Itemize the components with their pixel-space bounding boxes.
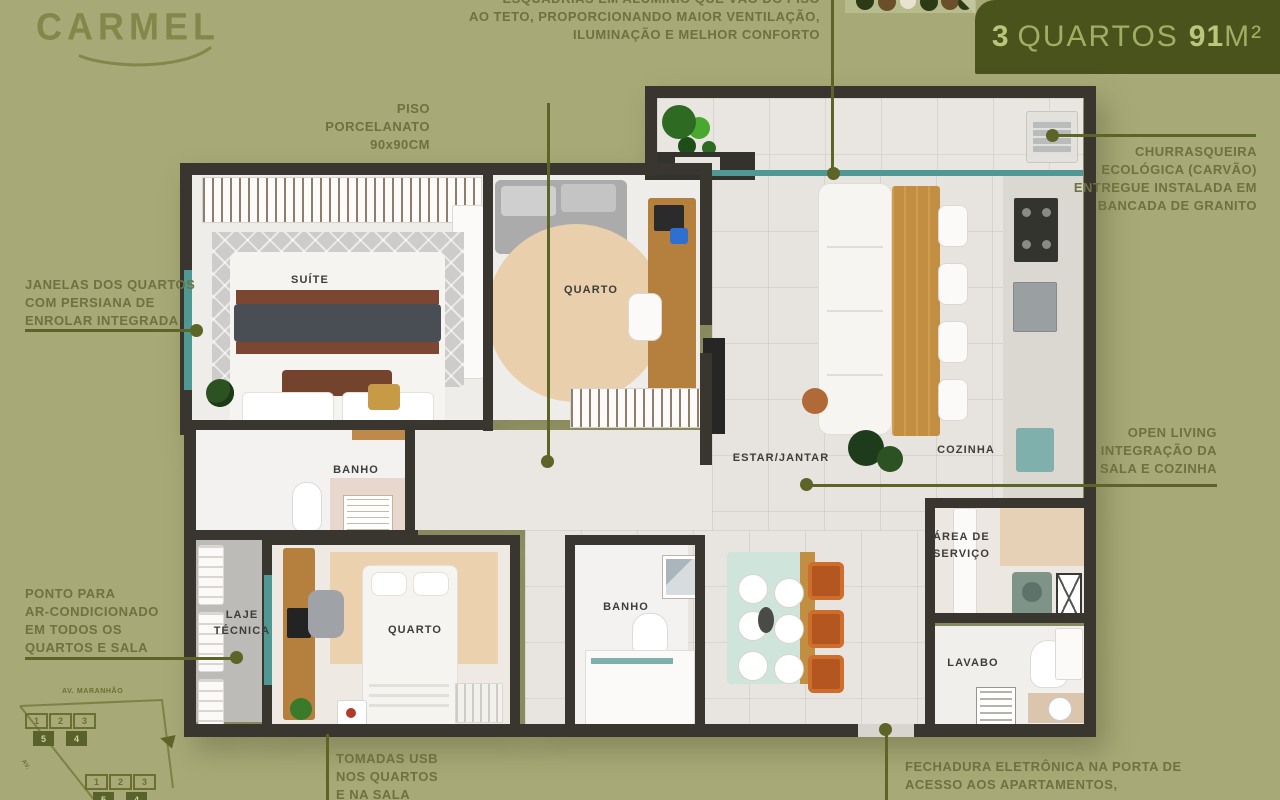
- annotation-line: ESQUADRIAS EM ALUMÍNIO QUE VÃO DO PISO: [469, 0, 820, 8]
- wall: [184, 425, 196, 737]
- annotation-piso: PISO PORCELANATO 90x90CM: [325, 100, 430, 154]
- leader-dot: [879, 723, 892, 736]
- red-accent: [346, 708, 356, 718]
- annotation-line: JANELAS DOS QUARTOS: [25, 276, 195, 294]
- room-label-laje1: LAJE: [226, 609, 259, 621]
- sofa-seam: [827, 310, 883, 312]
- plate: [774, 654, 804, 684]
- island-table: [892, 186, 940, 436]
- island-chair: [938, 321, 968, 363]
- annotation-line: BANCADA DE GRANITO: [1074, 197, 1257, 215]
- annotation-line: ENTREGUE INSTALADA EM: [1074, 179, 1257, 197]
- keyplan-tower: 1: [85, 774, 108, 790]
- wall: [262, 535, 514, 545]
- wall: [483, 163, 493, 431]
- blanket-fold: [369, 684, 449, 687]
- keyplan-tower-highlight: 5: [33, 731, 54, 746]
- window-balcony: [712, 170, 1083, 176]
- annotation-ar-condicionado: PONTO PARA AR-CONDICIONADO EM TODOS OS Q…: [25, 585, 159, 657]
- annotation-line: PISO: [325, 100, 430, 118]
- suite-closet: [202, 177, 482, 223]
- desk-accessory: [670, 228, 688, 244]
- blanket-fold: [369, 694, 449, 697]
- wall: [645, 86, 657, 176]
- bed-pillow: [371, 572, 407, 596]
- annotation-tomadas: TOMADAS USB NOS QUARTOS E NA SALA: [336, 750, 438, 800]
- leader-dot: [800, 478, 813, 491]
- annotation-esquadrias: ESQUADRIAS EM ALUMÍNIO QUE VÃO DO PISO A…: [469, 0, 820, 44]
- toilet: [292, 482, 322, 532]
- bath-vanity: [585, 650, 695, 726]
- blanket-fold: [369, 704, 449, 707]
- room-label-kitchen: COZINHA: [937, 444, 995, 456]
- wall: [565, 535, 575, 724]
- service-label-line1: ÁREA DE: [933, 529, 990, 546]
- wall: [695, 535, 705, 724]
- leader-dot: [230, 651, 243, 664]
- desk-chair: [628, 293, 662, 341]
- plate: [774, 578, 804, 608]
- washer: [1012, 572, 1052, 616]
- wall: [184, 724, 1096, 737]
- ac-unit: [198, 679, 224, 729]
- lav-sink-counter: [1028, 693, 1086, 723]
- keyplan-tower: 3: [133, 774, 156, 790]
- leader-dot: [1046, 129, 1059, 142]
- leader-line: [547, 103, 550, 461]
- sofa-seam: [827, 246, 883, 248]
- wall: [645, 86, 1096, 98]
- leader-line: [1052, 134, 1256, 137]
- pouf: [802, 388, 828, 414]
- wall: [565, 535, 705, 545]
- leader-dot: [541, 455, 554, 468]
- annotation-line: SALA E COZINHA: [1100, 460, 1217, 478]
- plate: [774, 614, 804, 644]
- keyplan-street-label: AV. MARANHÃO: [62, 688, 123, 695]
- leader-line: [25, 329, 197, 332]
- badge-room-label: QUARTOS: [1018, 20, 1179, 54]
- annotation-line: INTEGRAÇÃO DA: [1100, 442, 1217, 460]
- room-label-bathroom2: BANHO: [603, 601, 649, 613]
- annotation-line: ECOLÓGICA (CARVÃO): [1074, 161, 1257, 179]
- annotation-line: CHURRASQUEIRA: [1074, 143, 1257, 161]
- stove: [1014, 198, 1058, 262]
- room-label-bathroom1: BANHO: [333, 464, 379, 476]
- keyplan-tower: 2: [49, 713, 72, 729]
- leader-dot: [827, 167, 840, 180]
- annotation-line: AR-CONDICIONADO: [25, 603, 159, 621]
- plate: [738, 651, 768, 681]
- tree-strip: [845, 0, 976, 13]
- ac-unit: [198, 545, 224, 605]
- badge-room-count: 3: [992, 20, 1010, 54]
- wall: [925, 613, 1096, 623]
- wall: [405, 425, 415, 540]
- shower-tray: [344, 496, 392, 534]
- brand-logo: CARMEL: [36, 5, 220, 50]
- room-label-living: ESTAR/JANTAR: [733, 452, 830, 464]
- keyplan-tower-highlight: 5: [93, 792, 114, 800]
- logo-swash-icon: [40, 44, 220, 70]
- room-label-lavatory: LAVABO: [947, 657, 998, 669]
- sink-basin: [1048, 697, 1072, 721]
- plant-icon: [206, 379, 234, 407]
- suite-bed: [230, 252, 445, 427]
- island-chair: [938, 263, 968, 305]
- annotation-line: EM TODOS OS: [25, 621, 159, 639]
- desk-chair: [308, 590, 344, 638]
- annotation-line: E NA SALA: [336, 786, 438, 800]
- wall: [510, 535, 520, 724]
- annotation-line: FECHADURA ELETRÔNICA NA PORTA DE: [905, 758, 1182, 776]
- lav-mat: [977, 688, 1015, 724]
- room-label-service: ÁREA DE SERVIÇO: [933, 529, 990, 563]
- badge-area-unit: M²: [1224, 20, 1263, 54]
- bed-blanket-stripe2: [236, 342, 439, 354]
- annotation-line: AO TETO, PROPORCIONANDO MAIOR VENTILAÇÃO…: [469, 8, 820, 26]
- service-label-line2: SERVIÇO: [933, 546, 990, 563]
- island-chair: [938, 205, 968, 247]
- annotation-line: OPEN LIVING: [1100, 424, 1217, 442]
- bedroom-closet: [570, 388, 704, 428]
- annotation-line: 90x90CM: [325, 136, 430, 154]
- bed: [362, 565, 458, 735]
- service-counter: [1000, 508, 1084, 566]
- stove-burners: [1022, 208, 1031, 217]
- bed-blanket-dark: [234, 304, 441, 342]
- dining-chair: [808, 610, 844, 648]
- keyplan-tower: 1: [25, 713, 48, 729]
- sofa: [818, 183, 892, 435]
- annotation-line: PORCELANATO: [325, 118, 430, 136]
- hall-floor: [405, 430, 712, 530]
- badge-area-value: 91: [1189, 20, 1224, 54]
- floorplan: SUÍTE QUARTO BANHO ESTAR/JANTAR COZINHA …: [180, 85, 1096, 737]
- bed-pillow: [413, 572, 449, 596]
- annotation-line: ENROLAR INTEGRADA: [25, 312, 195, 330]
- kitchen-appliance: [1013, 282, 1057, 332]
- trees-icon: [845, 0, 976, 13]
- centerpiece: [758, 607, 774, 633]
- annotation-churrasqueira: CHURRASQUEIRA ECOLÓGICA (CARVÃO) ENTREGU…: [1074, 143, 1257, 215]
- wall: [925, 498, 1096, 508]
- keyplan-tower-highlight: 4: [66, 731, 87, 746]
- leader-line: [807, 484, 1217, 487]
- room-label-bedroom-bottom: QUARTO: [388, 624, 442, 636]
- plant-icon: [877, 446, 903, 472]
- keyplan-tower-highlight: 4: [126, 792, 147, 800]
- annotation-line: NOS QUARTOS: [336, 768, 438, 786]
- annotation-line: ILUMINAÇÃO E MELHOR CONFORTO: [469, 26, 820, 44]
- washer-door: [1022, 582, 1042, 602]
- leader-line: [25, 657, 237, 660]
- annotation-fechadura: FECHADURA ELETRÔNICA NA PORTA DE ACESSO …: [905, 758, 1182, 794]
- wall: [180, 420, 492, 430]
- vanity-teal-strip: [591, 658, 673, 664]
- keyplan-tower: 2: [109, 774, 132, 790]
- badge-curl: [961, 0, 975, 14]
- room-label-suite: SUÍTE: [291, 274, 329, 286]
- leader-dot: [190, 324, 203, 337]
- side-box: [337, 700, 367, 726]
- kitchen-sink: [1016, 428, 1054, 472]
- island-chair: [938, 379, 968, 421]
- lav-cabinet: [1055, 628, 1083, 680]
- bed-blanket-stripe: [236, 290, 439, 304]
- suite-basket: [368, 384, 400, 410]
- keyplan-tower: 3: [73, 713, 96, 729]
- plant-icon: [290, 698, 312, 720]
- ac-unit: [198, 612, 224, 672]
- wall: [700, 163, 712, 325]
- leader-line: [326, 734, 329, 800]
- annotation-line: ACESSO AOS APARTAMENTOS,: [905, 776, 1182, 794]
- daybed-pillow: [561, 184, 616, 212]
- leader-line: [831, 0, 834, 173]
- annotation-line: PONTO PARA: [25, 585, 159, 603]
- unit-badge: 3 QUARTOS 91 M²: [975, 0, 1280, 74]
- floorplan-poster: CARMEL 3 QUARTOS 91 M²: [0, 0, 1280, 800]
- wall-art: [663, 556, 699, 598]
- annotation-open-living: OPEN LIVING INTEGRAÇÃO DA SALA E COZINHA: [1100, 424, 1217, 478]
- bench: [455, 683, 503, 723]
- plate: [738, 574, 768, 604]
- dining-chair: [808, 655, 844, 693]
- annotation-line: COM PERSIANA DE: [25, 294, 195, 312]
- room-label-laje2: TÉCNICA: [214, 625, 271, 637]
- annotation-line: TOMADAS USB: [336, 750, 438, 768]
- sofa-seam: [827, 374, 883, 376]
- annotation-janelas: JANELAS DOS QUARTOS COM PERSIANA DE ENRO…: [25, 276, 195, 330]
- annotation-line: QUARTOS E SALA: [25, 639, 159, 657]
- wall: [180, 163, 712, 175]
- balcony-plant-icon: [662, 105, 696, 139]
- wall: [700, 353, 712, 465]
- leader-line: [885, 729, 888, 800]
- room-label-bedroom-top: QUARTO: [564, 284, 618, 296]
- dining-chair: [808, 562, 844, 600]
